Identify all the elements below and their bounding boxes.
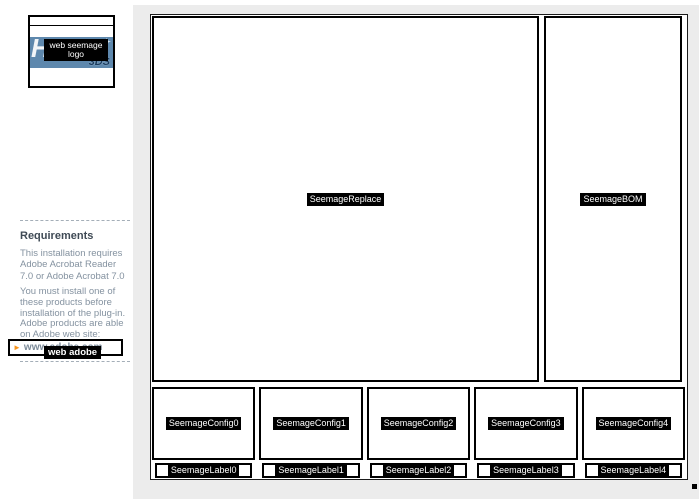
logo-alt-tooltip-line2: logo [45, 50, 107, 59]
para1-line1: This installation requires [20, 248, 122, 259]
adobe-link-box[interactable]: ► www.adobe.com web adobe [8, 339, 123, 356]
resize-handle[interactable] [692, 484, 697, 489]
seemage-label1-field: SeemageLabel1 [262, 463, 359, 478]
dashed-divider-bottom [20, 361, 130, 362]
adobe-link-alt-tooltip: web adobe [44, 346, 101, 359]
seemage-label2-tooltip: SeemageLabel2 [383, 464, 455, 477]
seemage-label0-field: SeemageLabel0 [155, 463, 252, 478]
config-row: SeemageConfig0 SeemageConfig1 SeemageCon… [152, 387, 685, 460]
para2-line4: Adobe products are able [20, 318, 124, 329]
para1-line2: Adobe Acrobat Reader [20, 259, 116, 270]
para2-line1: You must install one of [20, 286, 115, 297]
para2-line2: these products before [20, 297, 112, 308]
logo-gap [30, 26, 113, 37]
seemage-config4-button[interactable]: SeemageConfig4 [582, 387, 685, 460]
seemage-label4-field: SeemageLabel4 [585, 463, 682, 478]
seemage-config1-button[interactable]: SeemageConfig1 [259, 387, 362, 460]
seemage-label3-tooltip: SeemageLabel3 [490, 464, 562, 477]
label-row: SeemageLabel0 SeemageLabel1 SeemageLabel… [152, 463, 685, 478]
sidebar: HR 3DS ✈ web seemage logo Requirements T… [0, 0, 133, 499]
link-arrow-icon: ► [13, 344, 21, 352]
seemage-config2-tooltip: SeemageConfig2 [381, 417, 457, 430]
seemage-replace-tooltip: SeemageReplace [307, 193, 385, 206]
seemage-label2-field: SeemageLabel2 [370, 463, 467, 478]
main-panel: SeemageReplace SeemageBOM SeemageConfig0… [150, 14, 688, 480]
seemage-config0-button[interactable]: SeemageConfig0 [152, 387, 255, 460]
requirements-heading: Requirements [20, 230, 93, 242]
logo-image-placeholder: HR 3DS ✈ web seemage logo [28, 15, 115, 88]
design-canvas: HR 3DS ✈ web seemage logo Requirements T… [0, 0, 699, 499]
seemage-config4-tooltip: SeemageConfig4 [596, 417, 672, 430]
dashed-divider-top [20, 220, 130, 221]
para1-line3: 7.0 or Adobe Acrobat 7.0 [20, 271, 125, 282]
logo-header-strip [30, 17, 113, 26]
seemage-config0-tooltip: SeemageConfig0 [166, 417, 242, 430]
seemage-bom-panel[interactable]: SeemageBOM [544, 16, 682, 382]
seemage-label4-tooltip: SeemageLabel4 [598, 464, 670, 477]
requirements-paragraph-2: You must install one of these products b… [20, 287, 125, 341]
logo-alt-tooltip: web seemage logo [44, 39, 108, 61]
seemage-label0-tooltip: SeemageLabel0 [168, 464, 240, 477]
seemage-bom-tooltip: SeemageBOM [580, 193, 645, 206]
seemage-config3-tooltip: SeemageConfig3 [488, 417, 564, 430]
requirements-paragraph-1: This installation requires Adobe Acrobat… [20, 248, 125, 282]
seemage-label1-tooltip: SeemageLabel1 [275, 464, 347, 477]
seemage-replace-viewport[interactable]: SeemageReplace [152, 16, 539, 382]
para2-line3: installation of the plug-in. [20, 308, 125, 319]
seemage-config3-button[interactable]: SeemageConfig3 [474, 387, 577, 460]
seemage-config1-tooltip: SeemageConfig1 [273, 417, 349, 430]
seemage-label3-field: SeemageLabel3 [477, 463, 574, 478]
seemage-config2-button[interactable]: SeemageConfig2 [367, 387, 470, 460]
